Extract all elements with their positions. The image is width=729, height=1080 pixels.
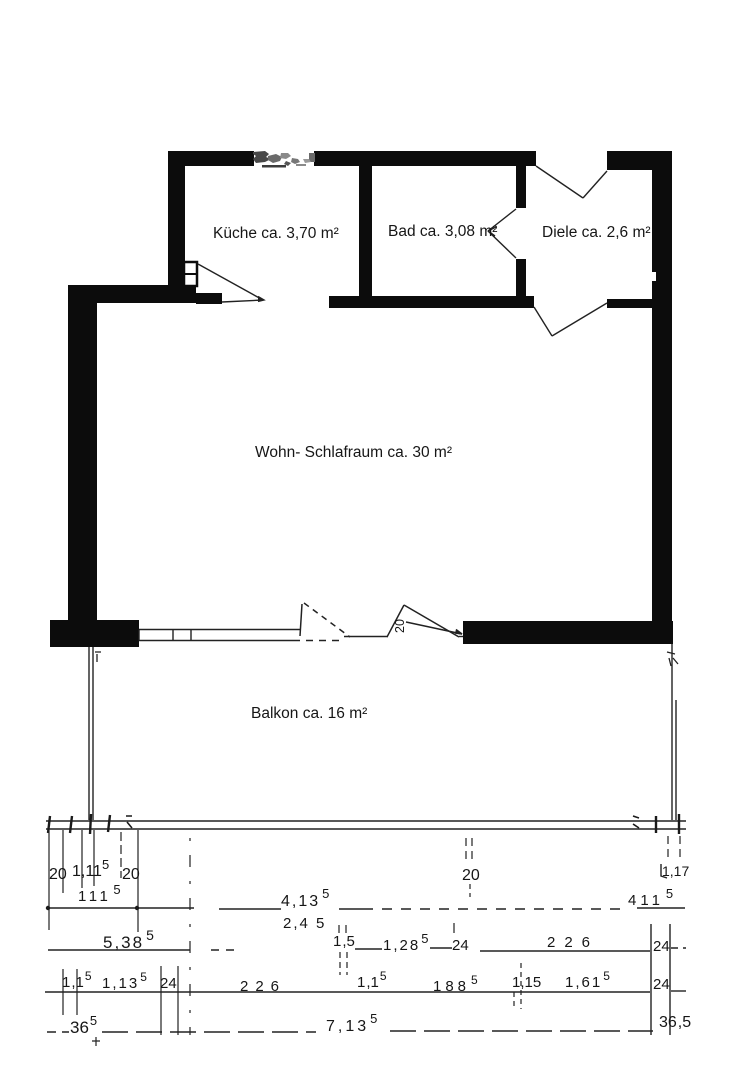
svg-text:1,17: 1,17 [662, 863, 689, 879]
svg-text:2,4 5: 2,4 5 [283, 915, 326, 932]
svg-text:Wohn- Schlafraum ca. 30 m²: Wohn- Schlafraum ca. 30 m² [255, 444, 452, 461]
svg-text:20: 20 [122, 866, 140, 883]
svg-text:1,15: 1,15 [512, 974, 541, 991]
svg-text:Küche ca. 3,70 m²: Küche ca. 3,70 m² [213, 225, 339, 242]
svg-text:24: 24 [452, 937, 469, 954]
svg-text:24: 24 [160, 975, 177, 992]
svg-text:Balkon ca. 16 m²: Balkon ca. 16 m² [251, 705, 367, 722]
svg-text:1,5: 1,5 [333, 933, 355, 950]
svg-text:20: 20 [393, 619, 407, 633]
svg-text:24: 24 [653, 938, 670, 955]
svg-text:226: 226 [547, 934, 599, 951]
svg-text:36,5: 36,5 [659, 1014, 691, 1031]
svg-text:24: 24 [653, 976, 670, 993]
svg-text:20: 20 [462, 867, 480, 884]
svg-text:Bad ca. 3,08 m²: Bad ca. 3,08 m² [388, 223, 497, 240]
svg-text:Diele ca. 2,6 m²: Diele ca. 2,6 m² [542, 224, 651, 241]
svg-text:20: 20 [49, 866, 67, 883]
